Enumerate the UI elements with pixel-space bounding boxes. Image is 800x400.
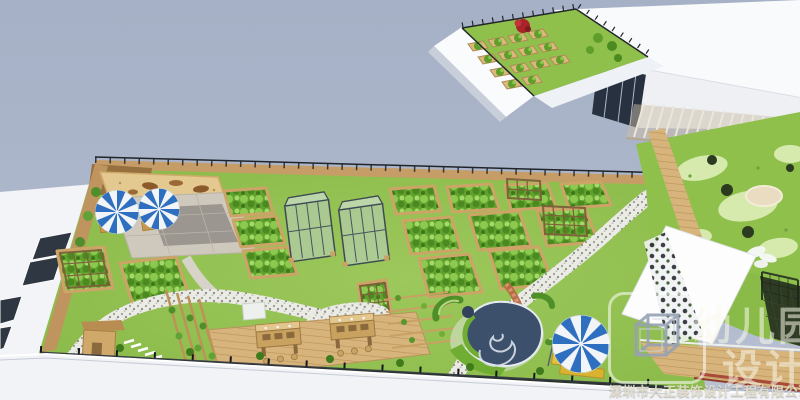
- leisure-parasol-canopy: [553, 316, 610, 373]
- sand-pit: [746, 186, 782, 206]
- patio-parasol-1: [95, 190, 138, 233]
- patio-parasol-2: [139, 189, 180, 230]
- render-canvas: 幼儿园 设计 深圳市大正装饰设计工程有限公司: [0, 0, 800, 400]
- scene-illustration: [0, 0, 800, 400]
